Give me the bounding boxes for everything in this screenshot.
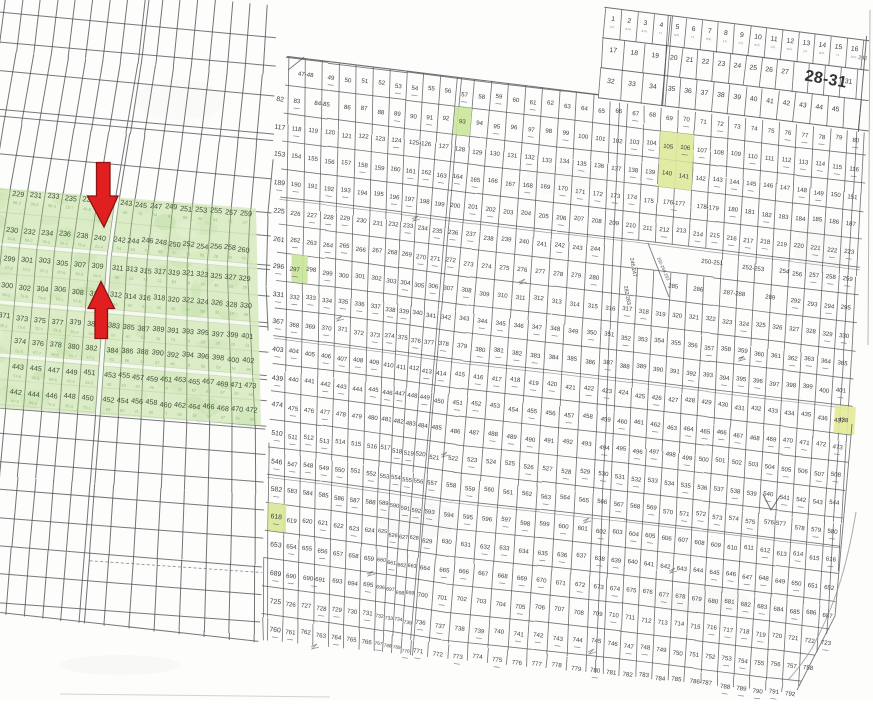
svg-text:401: 401 — [835, 387, 847, 395]
svg-text:203: 203 — [503, 208, 515, 216]
svg-text:146: 146 — [763, 182, 775, 190]
svg-text:661: 661 — [387, 560, 397, 567]
svg-text:295: 295 — [840, 304, 852, 312]
svg-text:395: 395 — [196, 327, 209, 337]
svg-text:789: 789 — [736, 685, 748, 693]
svg-text:302: 302 — [18, 283, 31, 293]
svg-text:676: 676 — [642, 588, 654, 596]
svg-text:764: 764 — [331, 634, 343, 642]
svg-text:214: 214 — [693, 230, 705, 238]
svg-text:267: 267 — [372, 247, 384, 255]
svg-text:436: 436 — [817, 414, 829, 422]
svg-text:652: 652 — [824, 584, 836, 592]
svg-text:41-2: 41-2 — [67, 378, 76, 384]
svg-text:393: 393 — [702, 371, 714, 379]
svg-text:66-6: 66-6 — [51, 351, 60, 357]
svg-text:131: 131 — [507, 152, 519, 160]
svg-text:231: 231 — [29, 190, 42, 200]
svg-text:266: 266 — [355, 246, 367, 254]
svg-text:567: 567 — [613, 501, 625, 509]
svg-text:530: 530 — [598, 470, 610, 478]
svg-text:686: 686 — [806, 609, 818, 617]
svg-text:616: 616 — [825, 556, 837, 564]
svg-text:694: 694 — [347, 580, 359, 588]
svg-text:473: 473 — [832, 443, 844, 451]
svg-text:c.h.: c.h. — [771, 45, 777, 50]
svg-text:461: 461 — [633, 418, 645, 426]
svg-text:158: 158 — [357, 161, 369, 169]
svg-text:379: 379 — [69, 317, 82, 327]
svg-text:260: 260 — [237, 244, 250, 254]
svg-text:524: 524 — [486, 458, 498, 466]
svg-text:427: 427 — [668, 396, 680, 404]
svg-text:654: 654 — [286, 543, 298, 551]
svg-text:238: 238 — [483, 235, 495, 243]
svg-text:768: 768 — [383, 643, 392, 649]
svg-text:544: 544 — [829, 499, 841, 507]
svg-text:663: 663 — [407, 563, 417, 570]
svg-text:418: 418 — [510, 376, 522, 384]
svg-text:638: 638 — [594, 555, 606, 563]
svg-text:113: 113 — [798, 158, 809, 166]
svg-text:313: 313 — [551, 298, 563, 306]
svg-text:718: 718 — [739, 628, 751, 636]
svg-text:748: 748 — [640, 644, 652, 652]
svg-text:538: 538 — [730, 487, 742, 495]
svg-text:387: 387 — [603, 359, 615, 367]
svg-text:210: 210 — [625, 222, 637, 230]
svg-text:469: 469 — [216, 379, 229, 389]
svg-text:392: 392 — [686, 370, 698, 378]
svg-text:57-6: 57-6 — [13, 373, 22, 379]
svg-text:74-9: 74-9 — [37, 295, 46, 301]
svg-text:459: 459 — [600, 416, 612, 424]
svg-text:650: 650 — [791, 580, 803, 588]
svg-text:140: 140 — [662, 169, 674, 177]
svg-text:472: 472 — [245, 404, 258, 414]
svg-text:249: 249 — [165, 201, 178, 211]
svg-text:40-8: 40-8 — [83, 206, 92, 212]
svg-text:352: 352 — [620, 335, 632, 343]
svg-text:670: 670 — [536, 576, 548, 584]
svg-text:526: 526 — [523, 463, 535, 471]
svg-text:448: 448 — [407, 392, 419, 400]
svg-text:609: 609 — [710, 541, 722, 549]
svg-text:280: 280 — [589, 274, 601, 282]
svg-text:584: 584 — [302, 489, 314, 497]
svg-text:449: 449 — [419, 394, 431, 402]
svg-text:118: 118 — [291, 125, 302, 133]
svg-text:397: 397 — [769, 380, 781, 388]
svg-text:370: 370 — [321, 324, 333, 332]
svg-text:80-2: 80-2 — [25, 237, 34, 243]
svg-text:533: 533 — [647, 477, 659, 485]
svg-text:244: 244 — [127, 236, 140, 246]
svg-text:150: 150 — [830, 191, 842, 199]
svg-text:26: 26 — [765, 66, 774, 74]
svg-text:15-7: 15-7 — [65, 204, 74, 210]
svg-text:79-9: 79-9 — [20, 293, 29, 299]
svg-text:112: 112 — [781, 156, 792, 164]
svg-text:312: 312 — [533, 294, 545, 302]
svg-text:435: 435 — [801, 411, 813, 419]
svg-text:457: 457 — [564, 412, 576, 420]
svg-text:388: 388 — [619, 362, 631, 370]
svg-text:402: 402 — [242, 355, 255, 365]
svg-text:720: 720 — [772, 632, 784, 640]
svg-text:243: 243 — [572, 244, 584, 252]
svg-text:462: 462 — [174, 400, 187, 410]
svg-text:569: 569 — [646, 504, 658, 512]
svg-text:502: 502 — [731, 459, 743, 467]
svg-text:390: 390 — [653, 366, 665, 374]
svg-text:396: 396 — [752, 377, 764, 385]
svg-text:278: 278 — [553, 270, 565, 278]
svg-text:136: 136 — [594, 162, 606, 170]
svg-text:614: 614 — [793, 550, 805, 558]
svg-text:562: 562 — [522, 490, 534, 498]
svg-text:710: 710 — [608, 611, 620, 619]
svg-text:207: 207 — [574, 215, 586, 223]
svg-text:147: 147 — [780, 184, 792, 192]
svg-text:785: 785 — [671, 675, 683, 683]
svg-text:461: 461 — [160, 374, 173, 384]
svg-text:636: 636 — [557, 551, 569, 559]
svg-text:141: 141 — [678, 173, 690, 181]
svg-text:642: 642 — [660, 563, 672, 571]
svg-text:102: 102 — [612, 137, 624, 145]
svg-text:425: 425 — [635, 392, 647, 400]
svg-text:622: 622 — [333, 522, 345, 530]
svg-text:257: 257 — [225, 207, 238, 217]
svg-text:401: 401 — [241, 331, 254, 341]
svg-text:19-3: 19-3 — [31, 375, 40, 381]
svg-text:263: 263 — [306, 239, 318, 247]
svg-text:482: 482 — [393, 418, 405, 426]
svg-text:197: 197 — [404, 195, 416, 203]
svg-text:555: 555 — [402, 477, 413, 484]
svg-text:525: 525 — [504, 460, 516, 468]
svg-text:37: 37 — [700, 89, 709, 97]
svg-text:757: 757 — [786, 662, 798, 670]
svg-text:446: 446 — [382, 389, 394, 397]
svg-text:254: 254 — [779, 268, 790, 275]
svg-text:535: 535 — [680, 482, 692, 490]
svg-text:469: 469 — [766, 436, 778, 444]
svg-text:649: 649 — [775, 578, 787, 586]
svg-text:330: 330 — [839, 332, 851, 340]
svg-text:666: 666 — [458, 568, 470, 576]
svg-text:706: 706 — [534, 603, 546, 611]
svg-text:372: 372 — [353, 329, 365, 337]
svg-text:633: 633 — [499, 544, 511, 552]
svg-text:442: 442 — [9, 387, 22, 397]
svg-text:a.m.: a.m. — [625, 27, 632, 32]
svg-text:735: 735 — [403, 620, 412, 627]
svg-text:693: 693 — [332, 577, 344, 585]
svg-text:353: 353 — [637, 336, 649, 344]
svg-text:329: 329 — [822, 330, 834, 338]
svg-text:76-2: 76-2 — [42, 239, 51, 245]
svg-text:381: 381 — [493, 346, 505, 354]
svg-text:659: 659 — [364, 555, 376, 563]
svg-text:397: 397 — [211, 329, 224, 339]
svg-text:47-5: 47-5 — [11, 398, 20, 404]
svg-text:472: 472 — [816, 440, 828, 448]
svg-text:285: 285 — [668, 283, 679, 290]
svg-text:231: 231 — [372, 220, 384, 228]
svg-text:55-7: 55-7 — [69, 353, 78, 359]
svg-text:124: 124 — [391, 137, 403, 145]
svg-text:75-7: 75-7 — [35, 326, 44, 332]
svg-text:199: 199 — [434, 200, 446, 208]
svg-text:471: 471 — [230, 380, 243, 390]
svg-text:782: 782 — [622, 671, 634, 679]
svg-text:111: 111 — [765, 155, 776, 163]
svg-text:327: 327 — [224, 272, 237, 282]
svg-text:470: 470 — [231, 404, 244, 414]
svg-text:327: 327 — [789, 325, 801, 333]
svg-text:326: 326 — [211, 297, 224, 307]
svg-text:514: 514 — [335, 438, 347, 446]
svg-text:338: 338 — [385, 306, 397, 314]
svg-text:733: 733 — [385, 615, 394, 622]
svg-text:389: 389 — [636, 363, 648, 371]
svg-text:742: 742 — [533, 631, 545, 639]
svg-text:c.h.: c.h. — [738, 41, 744, 46]
svg-text:423: 423 — [601, 387, 613, 395]
svg-text:432: 432 — [751, 405, 763, 413]
svg-text:340: 340 — [412, 309, 424, 317]
svg-text:318: 318 — [638, 308, 650, 316]
svg-text:16: 16 — [850, 45, 859, 53]
svg-text:444: 444 — [352, 385, 364, 393]
svg-text:411: 411 — [396, 363, 407, 371]
svg-text:228: 228 — [323, 214, 335, 222]
svg-text:384: 384 — [106, 345, 119, 355]
svg-text:87-7: 87-7 — [33, 350, 42, 356]
svg-text:142: 142 — [695, 175, 707, 183]
svg-text:391: 391 — [167, 325, 180, 335]
svg-text:145: 145 — [746, 180, 758, 188]
svg-text:571: 571 — [679, 510, 691, 518]
svg-text:167: 167 — [505, 180, 517, 188]
svg-text:756: 756 — [770, 660, 782, 668]
svg-text:276: 276 — [517, 266, 529, 274]
svg-text:610: 610 — [727, 544, 739, 552]
svg-text:403: 403 — [272, 346, 284, 354]
svg-text:462: 462 — [650, 421, 662, 429]
svg-text:299: 299 — [3, 253, 16, 263]
svg-text:130: 130 — [489, 150, 501, 158]
svg-text:400: 400 — [227, 354, 240, 364]
svg-text:777: 777 — [531, 660, 543, 668]
svg-text:294: 294 — [824, 302, 836, 310]
svg-text:175: 175 — [643, 197, 655, 205]
svg-text:383: 383 — [530, 352, 542, 360]
svg-text:121: 121 — [341, 132, 353, 140]
svg-text:56-2: 56-2 — [2, 292, 11, 298]
svg-text:354: 354 — [654, 337, 666, 345]
svg-text:684: 684 — [773, 606, 785, 614]
svg-text:426: 426 — [651, 394, 663, 402]
svg-text:274: 274 — [481, 262, 493, 270]
svg-text:259: 259 — [240, 208, 253, 218]
svg-text:451: 451 — [83, 367, 96, 377]
svg-text:190: 190 — [290, 181, 302, 189]
svg-text:38: 38 — [717, 91, 726, 99]
svg-text:420: 420 — [547, 380, 559, 388]
svg-text:539: 539 — [746, 490, 758, 498]
svg-text:369: 369 — [305, 323, 317, 331]
svg-text:163: 163 — [436, 172, 448, 180]
svg-text:528: 528 — [561, 468, 573, 476]
svg-text:114: 114 — [815, 160, 826, 168]
svg-text:515: 515 — [351, 440, 363, 448]
svg-text:17-2: 17-2 — [86, 355, 95, 361]
svg-text:311: 311 — [111, 263, 123, 273]
svg-text:664: 664 — [420, 564, 432, 572]
svg-text:559: 559 — [465, 485, 477, 493]
svg-text:421: 421 — [565, 384, 577, 392]
svg-text:740: 740 — [494, 628, 506, 636]
svg-text:16-8: 16-8 — [7, 236, 16, 242]
svg-text:672: 672 — [575, 581, 587, 589]
svg-text:476: 476 — [304, 407, 316, 415]
svg-text:303: 303 — [386, 277, 398, 285]
svg-text:193: 193 — [340, 186, 352, 194]
svg-text:396: 396 — [197, 351, 210, 361]
svg-text:320: 320 — [167, 294, 180, 304]
svg-text:520: 520 — [415, 450, 427, 458]
svg-text:744: 744 — [572, 636, 584, 644]
svg-text:671: 671 — [555, 579, 567, 587]
svg-text:216: 216 — [726, 234, 738, 242]
svg-text:c.h.: c.h. — [610, 25, 616, 30]
svg-text:498: 498 — [665, 451, 677, 459]
svg-text:597: 597 — [501, 516, 513, 524]
svg-text:496: 496 — [632, 448, 644, 456]
svg-text:w.b.: w.b. — [674, 33, 681, 38]
svg-text:443: 443 — [336, 383, 348, 391]
svg-text:557: 557 — [427, 479, 439, 487]
svg-text:399: 399 — [802, 383, 814, 391]
svg-text:656: 656 — [317, 548, 329, 556]
svg-text:471: 471 — [799, 439, 811, 447]
svg-text:234: 234 — [41, 228, 54, 238]
svg-text:153: 153 — [274, 151, 286, 159]
svg-text:604: 604 — [628, 530, 640, 538]
svg-text:10-2: 10-2 — [22, 266, 31, 272]
svg-text:439: 439 — [271, 375, 283, 383]
svg-text:350: 350 — [586, 329, 598, 337]
svg-text:531: 531 — [614, 473, 626, 481]
svg-text:225: 225 — [273, 207, 285, 215]
svg-text:454: 454 — [508, 406, 520, 414]
svg-text:236: 236 — [59, 228, 72, 238]
svg-text:307: 307 — [443, 285, 455, 293]
svg-text:714: 714 — [674, 620, 686, 628]
svg-text:775: 775 — [492, 656, 504, 664]
svg-text:644: 644 — [693, 567, 705, 575]
svg-text:223: 223 — [844, 248, 856, 256]
svg-text:337: 337 — [370, 303, 382, 311]
svg-text:662: 662 — [397, 562, 407, 569]
svg-text:378: 378 — [438, 340, 450, 348]
svg-text:500: 500 — [698, 456, 710, 464]
svg-text:599: 599 — [539, 520, 551, 528]
svg-text:204: 204 — [521, 209, 533, 217]
svg-text:695: 695 — [363, 581, 375, 589]
svg-text:202: 202 — [485, 206, 497, 214]
svg-text:711: 711 — [625, 614, 636, 622]
svg-text:229: 229 — [12, 189, 25, 199]
svg-text:297: 297 — [289, 266, 301, 274]
svg-text:292: 292 — [790, 297, 802, 305]
svg-text:262: 262 — [290, 237, 302, 245]
svg-text:20: 20 — [670, 54, 679, 62]
svg-text:32: 32 — [607, 78, 616, 86]
svg-text:w.b.: w.b. — [819, 51, 826, 56]
svg-text:463: 463 — [174, 374, 187, 384]
svg-text:460: 460 — [159, 400, 172, 410]
svg-text:218: 218 — [760, 238, 772, 246]
svg-text:14: 14 — [818, 42, 827, 50]
svg-text:180: 180 — [728, 206, 740, 214]
svg-text:657: 657 — [333, 550, 345, 558]
svg-text:35-3: 35-3 — [65, 403, 74, 409]
svg-text:243: 243 — [120, 198, 133, 208]
svg-text:497: 497 — [649, 448, 661, 456]
svg-text:716: 716 — [706, 624, 718, 632]
svg-text:268: 268 — [387, 249, 399, 257]
svg-text:570: 570 — [663, 508, 675, 516]
svg-text:363: 363 — [804, 355, 816, 363]
svg-text:488: 488 — [487, 430, 499, 438]
svg-text:573: 573 — [712, 514, 724, 522]
svg-text:726: 726 — [285, 601, 297, 609]
svg-text:356: 356 — [687, 342, 699, 350]
svg-text:304: 304 — [36, 284, 49, 294]
svg-text:413: 413 — [421, 368, 433, 376]
svg-text:253: 253 — [195, 204, 208, 214]
svg-text:296: 296 — [272, 263, 284, 271]
svg-text:382: 382 — [85, 343, 98, 353]
svg-text:465: 465 — [700, 428, 712, 436]
svg-text:365: 365 — [837, 359, 849, 367]
svg-text:741: 741 — [513, 630, 525, 638]
svg-text:377: 377 — [424, 339, 436, 347]
svg-text:323: 323 — [196, 269, 209, 279]
svg-text:635: 635 — [537, 550, 549, 558]
svg-text:a.m.: a.m. — [850, 55, 857, 60]
svg-text:445: 445 — [368, 386, 380, 394]
svg-text:245: 245 — [135, 200, 148, 210]
svg-text:474: 474 — [271, 401, 283, 409]
svg-text:776: 776 — [511, 659, 523, 667]
svg-text:467: 467 — [202, 376, 215, 386]
svg-text:485: 485 — [431, 424, 443, 432]
svg-text:172: 172 — [592, 190, 604, 198]
svg-text:57-5: 57-5 — [73, 298, 82, 304]
svg-text:761: 761 — [285, 629, 297, 637]
svg-text:129: 129 — [472, 149, 484, 157]
svg-text:412: 412 — [409, 364, 421, 372]
svg-text:645: 645 — [709, 569, 721, 577]
svg-text:689: 689 — [270, 570, 282, 578]
svg-text:40: 40 — [749, 96, 758, 104]
svg-text:466: 466 — [716, 429, 728, 437]
